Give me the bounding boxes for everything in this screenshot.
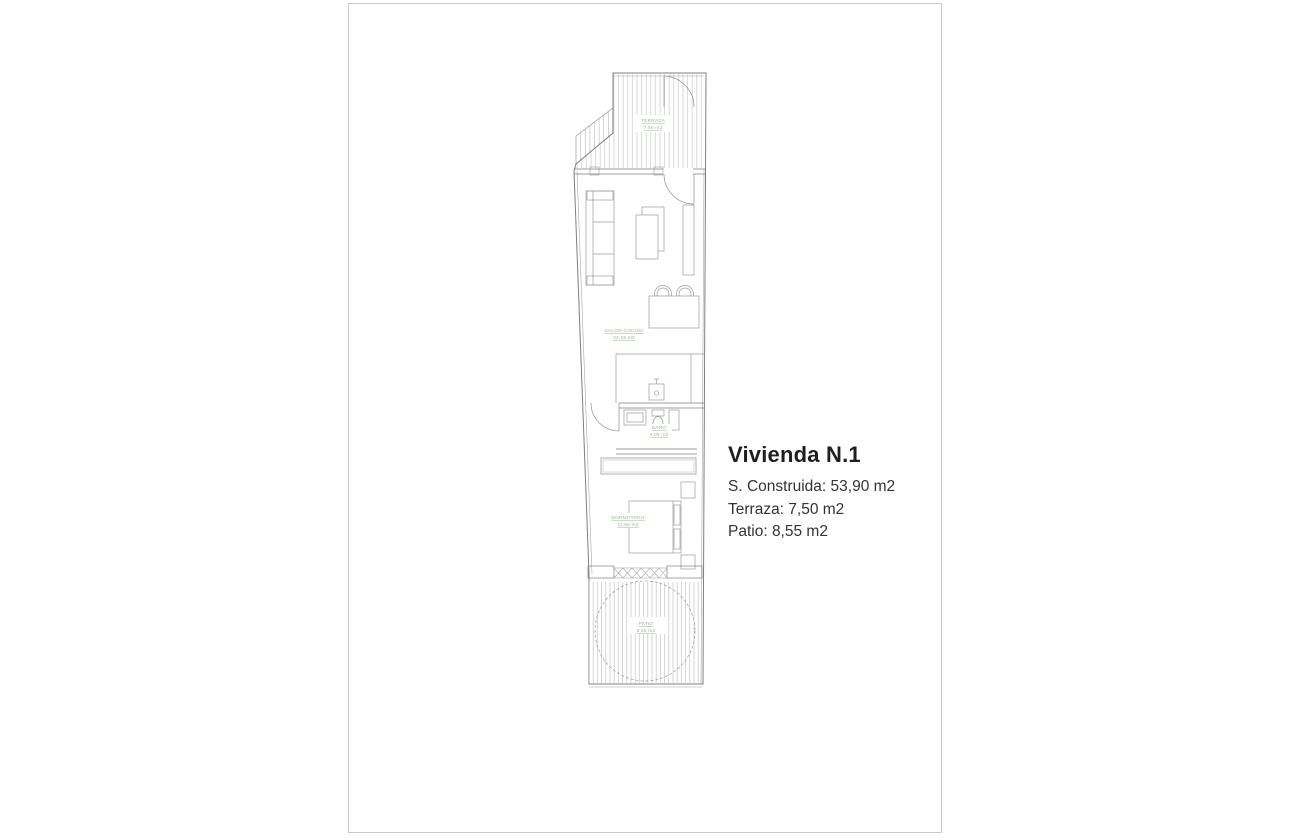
- room-label-salon-area: 22,15 m2: [613, 335, 635, 341]
- pillow: [674, 505, 680, 525]
- info-line-construida: S. Construida: 53,90 m2: [728, 476, 928, 499]
- kitchen-sink: [649, 379, 664, 400]
- sofa: [586, 191, 614, 285]
- room-label-banyo-area: 4,05 m2: [650, 432, 669, 438]
- room-label-dormitorio-name: DORMITORIO: [611, 515, 644, 521]
- plan-title: Vivienda N.1: [728, 442, 928, 468]
- bathroom-sink: [624, 410, 646, 425]
- floorplan-svg: TERRAZA 7,50 m2 SALON-COCINA 22,15 m2 BA…: [566, 68, 716, 693]
- plan-sheet: TERRAZA 7,50 m2 SALON-COCINA 22,15 m2 BA…: [348, 3, 942, 833]
- living-room: [574, 167, 706, 403]
- room-label-dormitorio-area: 11,95 m2: [617, 522, 638, 528]
- bathroom-door-arc: [591, 403, 619, 431]
- info-line-terraza: Terraza: 7,50 m2: [728, 499, 928, 522]
- room-label-salon-name: SALON-COCINA: [605, 328, 645, 334]
- dining-table: [649, 296, 699, 328]
- nightstand: [681, 482, 695, 498]
- room-label-patio-area: 8,55 m2: [637, 628, 656, 634]
- info-block: Vivienda N.1 S. Construida: 53,90 m2 Ter…: [728, 442, 928, 544]
- wardrobe: [601, 458, 696, 474]
- terrace-area: [575, 74, 705, 168]
- coffee-table: [636, 207, 664, 259]
- window-band: [614, 568, 667, 578]
- room-label-banyo-name: BAÑO: [652, 424, 666, 431]
- room-label-patio-name: PATIO: [639, 621, 654, 627]
- info-line-patio: Patio: 8,55 m2: [728, 521, 928, 544]
- sideboard: [683, 205, 694, 275]
- nightstand: [681, 555, 695, 569]
- entrance-door-arc: [664, 174, 694, 204]
- patio-wall: [588, 566, 702, 578]
- pillow: [674, 529, 680, 549]
- room-label-terraza-area: 7,50 m2: [644, 125, 663, 131]
- room-label-terraza-name: TERRAZA: [641, 118, 665, 124]
